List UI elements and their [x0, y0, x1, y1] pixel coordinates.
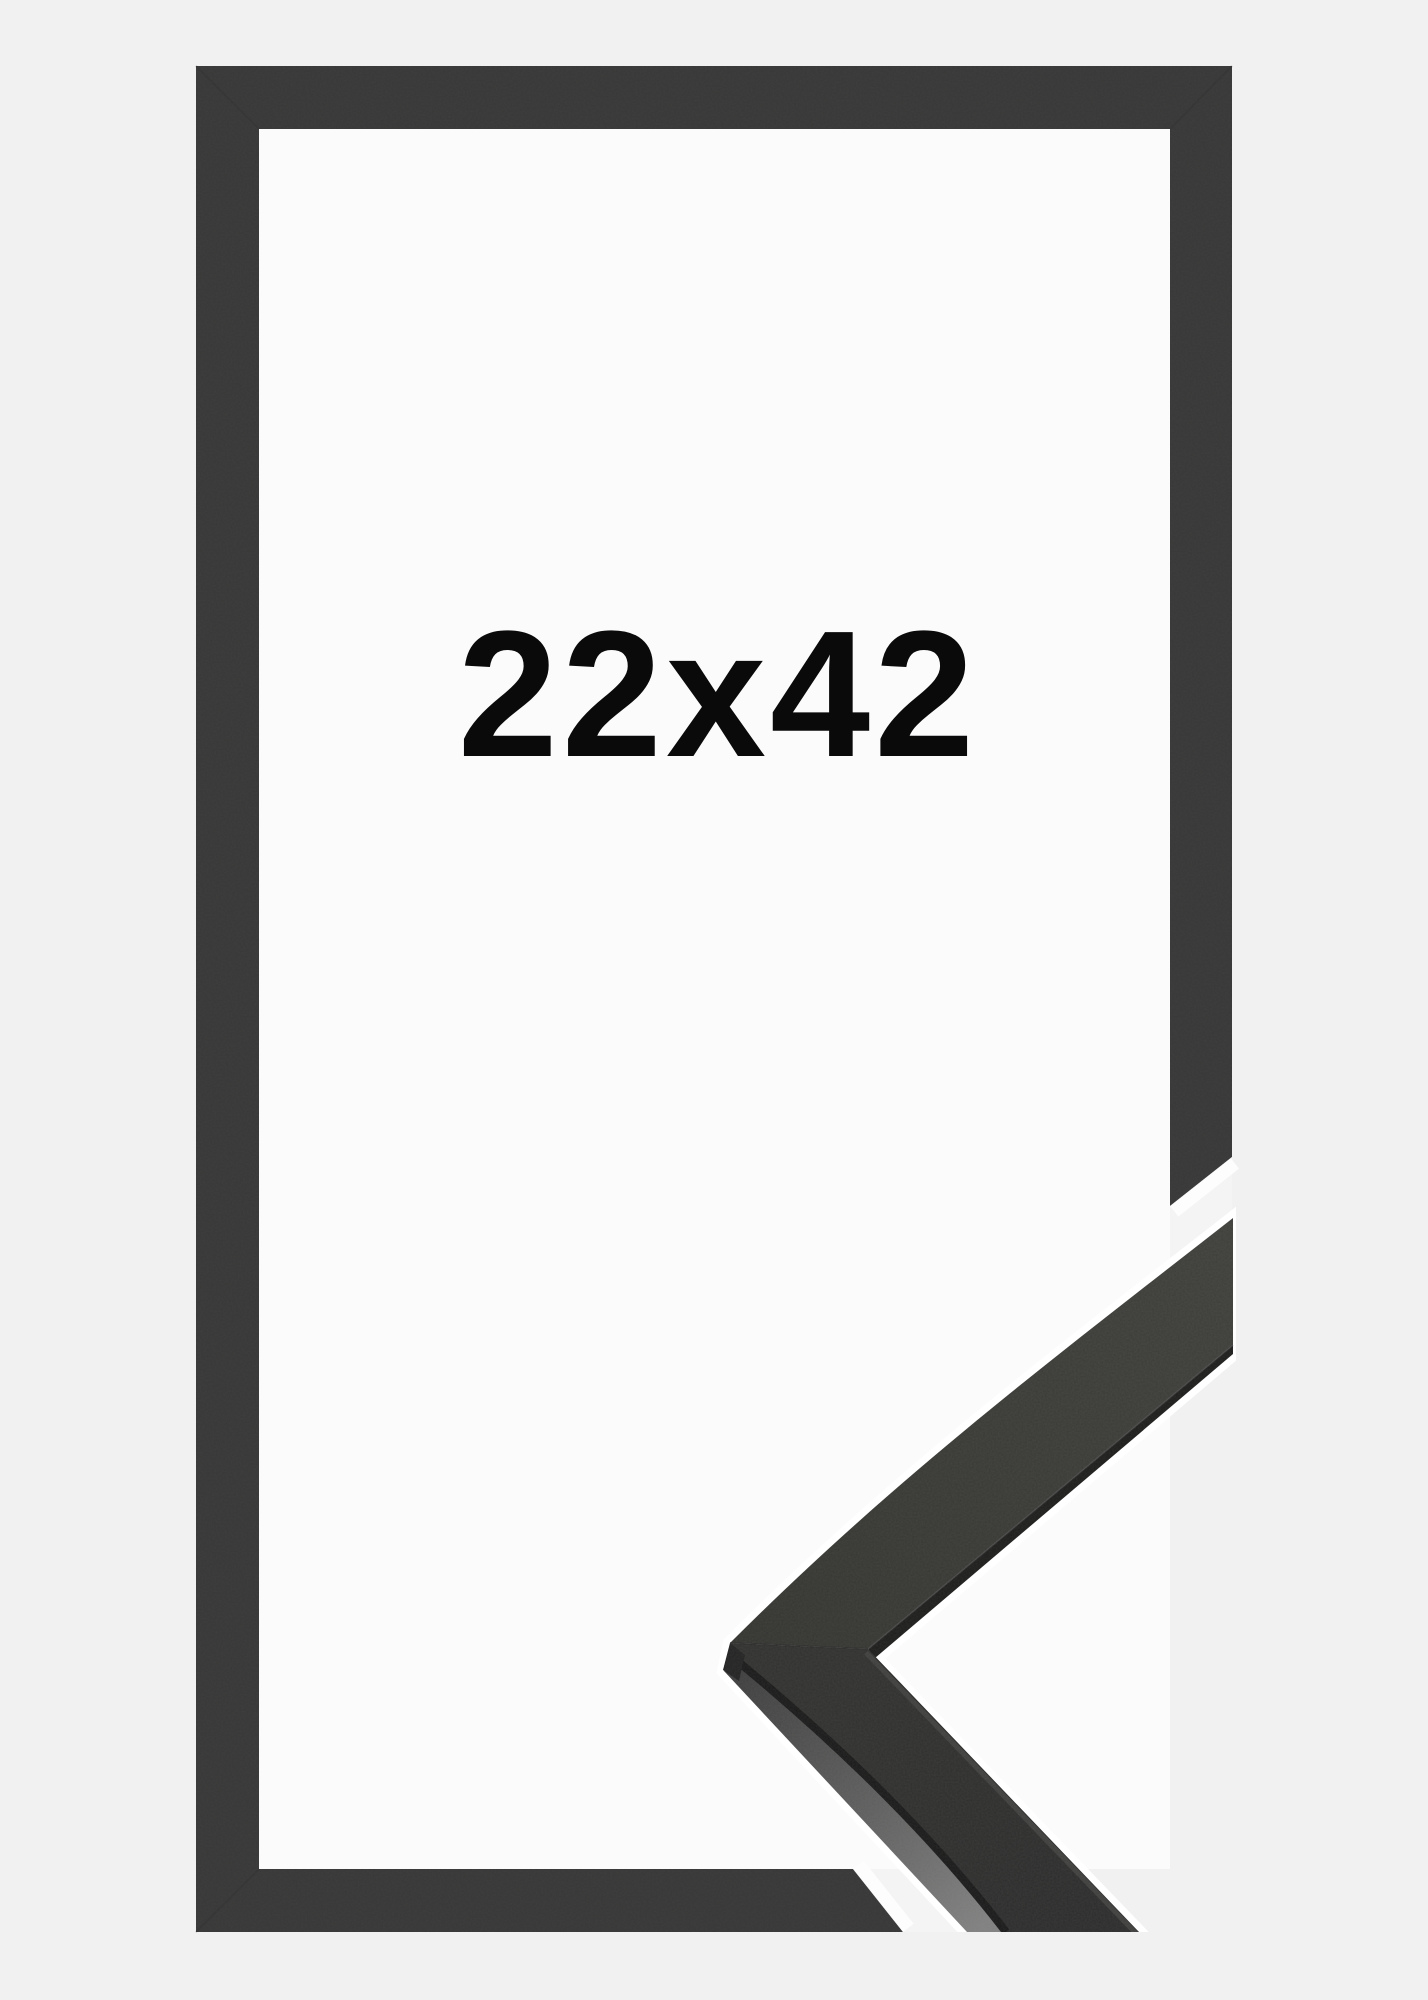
- svg-text:22x42: 22x42: [458, 594, 979, 795]
